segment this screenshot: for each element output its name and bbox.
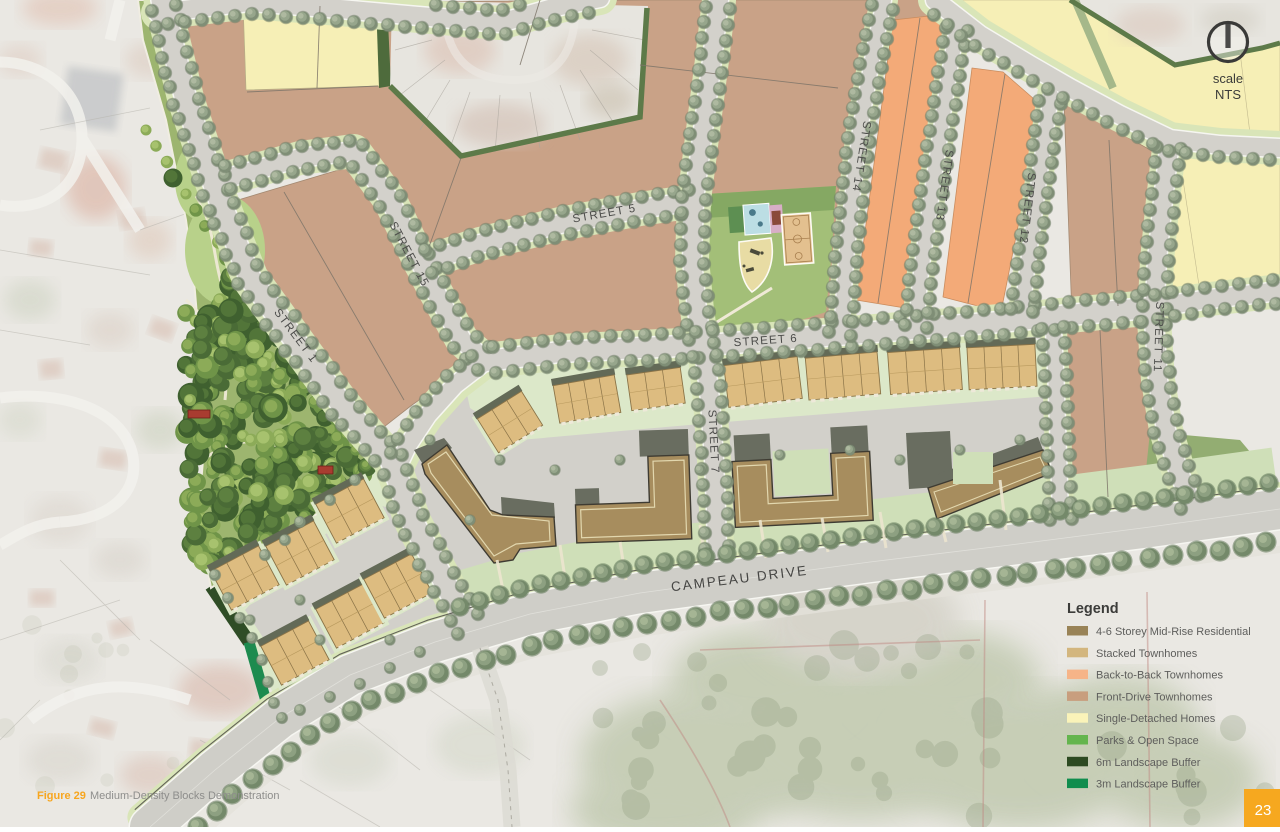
svg-text:Medium-Density Blocks Demonstr: Medium-Density Blocks Demonstration <box>90 790 280 802</box>
svg-text:3m Landscape Buffer: 3m Landscape Buffer <box>1096 779 1201 791</box>
svg-text:Legend: Legend <box>1067 601 1119 617</box>
svg-text:Back-to-Back Townhomes: Back-to-Back Townhomes <box>1096 670 1223 682</box>
svg-text:STREET 11: STREET 11 <box>1151 301 1165 372</box>
svg-text:6m Landscape Buffer: 6m Landscape Buffer <box>1096 757 1201 769</box>
svg-text:23: 23 <box>1255 802 1272 819</box>
svg-text:scale: scale <box>1213 71 1243 86</box>
svg-text:NTS: NTS <box>1215 87 1241 102</box>
svg-text:Parks & Open Space: Parks & Open Space <box>1096 735 1199 747</box>
svg-text:Stacked Townhomes: Stacked Townhomes <box>1096 648 1198 660</box>
svg-text:Figure 29: Figure 29 <box>37 790 86 802</box>
svg-text:Front-Drive Townhomes: Front-Drive Townhomes <box>1096 691 1213 703</box>
svg-text:4-6 Storey Mid-Rise Residentia: 4-6 Storey Mid-Rise Residential <box>1096 626 1251 638</box>
svg-text:Single-Detached Homes: Single-Detached Homes <box>1096 713 1216 725</box>
